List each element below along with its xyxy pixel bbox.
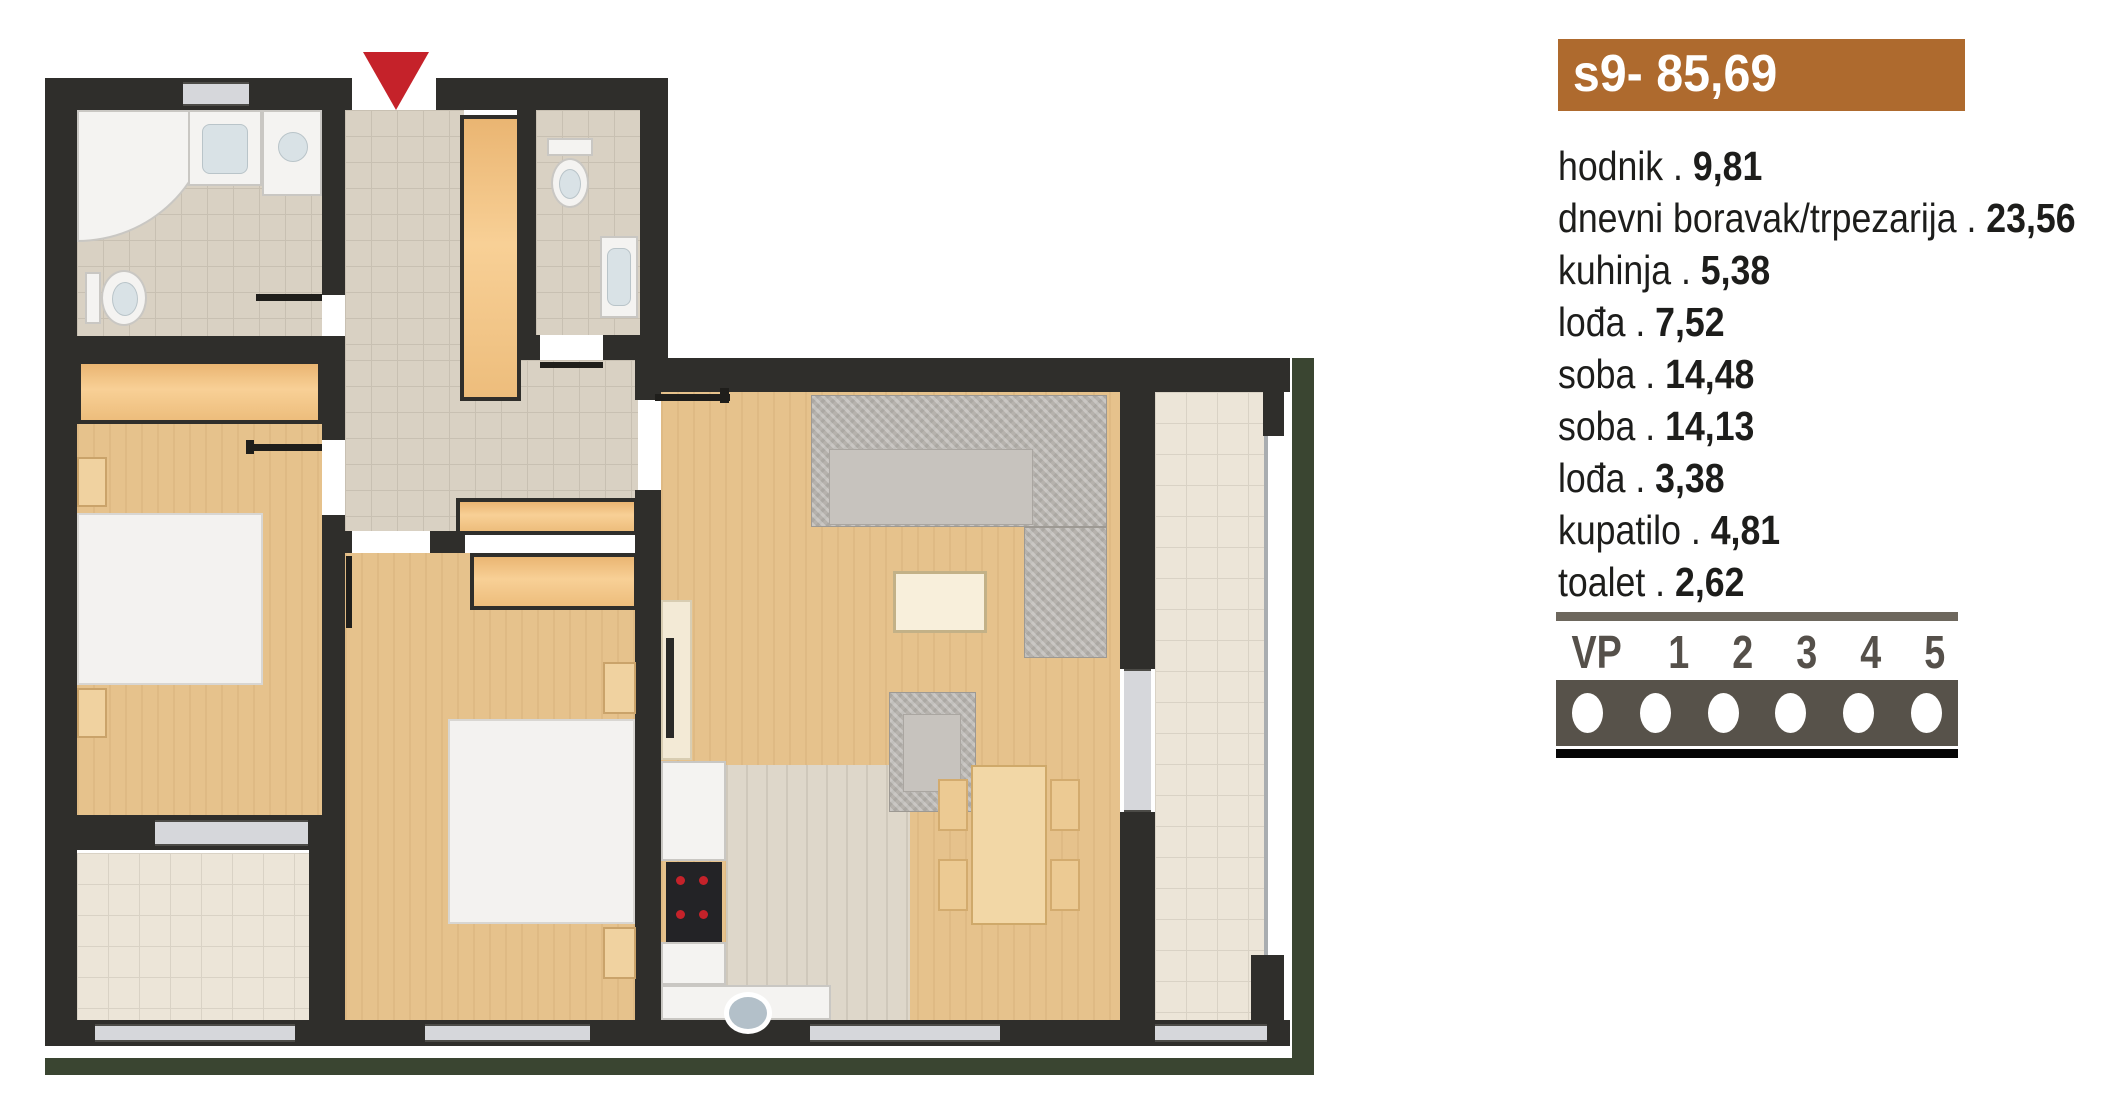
- corner-sofa-chaise: [1024, 527, 1107, 658]
- bed: [77, 513, 263, 685]
- separator: .: [1957, 195, 1987, 241]
- wall-segment: [322, 344, 345, 440]
- kitchen-counter: [661, 761, 726, 861]
- dining-chair: [938, 779, 968, 831]
- room-area: 14,13: [1665, 403, 1754, 449]
- floor-indicator: VP 1 2 3 4 5: [1556, 612, 1958, 758]
- wall-segment: [1120, 812, 1155, 1046]
- wall-segment: [640, 78, 668, 335]
- loggia-large-floor: [1155, 392, 1267, 1020]
- wall-segment: [635, 490, 661, 1046]
- floor-dot: [1911, 693, 1942, 733]
- wall-segment: [45, 336, 345, 360]
- room-name: lođa: [1558, 299, 1625, 345]
- wall-segment: [345, 531, 352, 553]
- room-area: 3,38: [1655, 455, 1724, 501]
- stove: [666, 862, 722, 942]
- stove-burner: [676, 876, 685, 885]
- list-item: hodnik . 9,81: [1558, 140, 2076, 192]
- wc-bowl-inner: [559, 169, 581, 199]
- floor-label: 3: [1796, 625, 1817, 679]
- dining-chair: [1050, 859, 1080, 911]
- list-item: kuhinja . 5,38: [1558, 244, 2076, 296]
- facade-strip-right: [1292, 358, 1314, 1075]
- floor-dot: [1843, 693, 1874, 733]
- wall-segment: [661, 358, 1290, 392]
- list-item: kupatilo . 4,81: [1558, 504, 2076, 556]
- living-loggia-window: [1124, 669, 1151, 812]
- loggia-pillar: [1251, 955, 1284, 1020]
- floor-label: 1: [1668, 625, 1689, 679]
- dining-table: [971, 765, 1047, 925]
- living-room-door: [655, 394, 730, 401]
- separator: .: [1635, 351, 1665, 397]
- wall-segment: [322, 110, 345, 295]
- floor-label: 5: [1925, 625, 1946, 679]
- wall-segment: [517, 110, 536, 335]
- hallway-wardrobe: [460, 115, 521, 401]
- toilet-bowl-inner: [112, 282, 138, 316]
- room-name: soba: [1558, 403, 1635, 449]
- wc-tank: [547, 138, 593, 156]
- floor-dot: [1775, 693, 1806, 733]
- loggia-large-sill: [1155, 1024, 1267, 1042]
- bedroom2-wardrobe: [470, 553, 638, 610]
- separator: .: [1681, 507, 1711, 553]
- room-area: 2,62: [1675, 559, 1744, 605]
- bedroom2-door: [346, 556, 352, 628]
- loggia-small-window: [95, 1024, 295, 1042]
- list-item: lođa . 7,52: [1558, 296, 2076, 348]
- stove-burner: [699, 876, 708, 885]
- bedroom1-window: [155, 820, 308, 846]
- washing-machine-door: [278, 132, 308, 162]
- floor-plan-page: s9- 85,69 hodnik . 9,81 dnevni boravak/t…: [0, 0, 2126, 1096]
- separator: .: [1645, 559, 1675, 605]
- indicator-bottom-bar: [1556, 749, 1958, 758]
- wall-segment: [45, 78, 77, 1046]
- list-item: dnevni boravak/trpezarija . 23,56: [1558, 192, 2076, 244]
- door-handle: [246, 440, 254, 454]
- bed: [448, 719, 635, 924]
- toilet-tank: [85, 272, 101, 324]
- loggia-glass-railing: [1264, 436, 1268, 955]
- loggia-pillar: [1263, 392, 1284, 436]
- room-area: 23,56: [1986, 195, 2075, 241]
- wall-segment: [322, 515, 345, 815]
- list-item: toalet . 2,62: [1558, 556, 2076, 608]
- list-item: soba . 14,13: [1558, 400, 2076, 452]
- room-name: kuhinja: [1558, 247, 1671, 293]
- floor-dot: [1572, 693, 1603, 733]
- separator: .: [1671, 247, 1701, 293]
- wall-segment: [436, 78, 668, 110]
- corner-sofa-seat: [829, 449, 1033, 525]
- floor-label: 2: [1732, 625, 1753, 679]
- room-area: 7,52: [1655, 299, 1724, 345]
- hallway-closet: [456, 498, 638, 535]
- wall-segment: [517, 335, 540, 360]
- entrance-arrow-icon: [363, 52, 429, 110]
- floor-dot: [1708, 693, 1739, 733]
- stove-burner: [676, 910, 685, 919]
- room-name: soba: [1558, 351, 1635, 397]
- room-area-list: hodnik . 9,81 dnevni boravak/trpezarija …: [1558, 140, 2126, 608]
- floor-labels: VP 1 2 3 4 5: [1556, 624, 1958, 680]
- hallway-floor-upper: [345, 110, 464, 360]
- nightstand: [77, 688, 107, 738]
- facade-strip-bottom: [45, 1058, 1314, 1075]
- room-name: toalet: [1558, 559, 1645, 605]
- unit-title: s9- 85,69: [1558, 39, 1777, 109]
- unit-title-badge: s9- 85,69: [1558, 39, 1965, 111]
- floor-dot: [1640, 693, 1671, 733]
- kitchen-counter: [661, 942, 726, 985]
- bedroom1-wardrobe: [77, 360, 322, 424]
- tv-screen: [666, 638, 674, 738]
- bathroom-window: [183, 82, 249, 106]
- loggia-small-floor: [77, 853, 309, 1020]
- nightstand: [603, 662, 636, 714]
- room-name: hodnik: [1558, 143, 1663, 189]
- wall-segment: [430, 531, 465, 553]
- floor-label: VP: [1572, 625, 1622, 679]
- bedroom1-door: [254, 444, 322, 451]
- dining-chair: [1050, 779, 1080, 831]
- room-name: dnevni boravak/trpezarija: [1558, 195, 1957, 241]
- door-handle: [720, 388, 729, 403]
- room-area: 14,48: [1665, 351, 1754, 397]
- wall-segment: [1120, 392, 1155, 669]
- room-name: kupatilo: [1558, 507, 1681, 553]
- floor-dots-bar: [1556, 680, 1958, 746]
- nightstand: [77, 457, 107, 507]
- bathroom-sink-basin: [202, 124, 248, 174]
- room-name: lođa: [1558, 455, 1625, 501]
- list-item: soba . 14,48: [1558, 348, 2076, 400]
- separator: .: [1635, 403, 1665, 449]
- separator: .: [1625, 299, 1655, 345]
- kitchen-floor: [726, 765, 910, 1020]
- bathroom-door: [256, 294, 322, 301]
- room-area: 5,38: [1701, 247, 1770, 293]
- separator: .: [1663, 143, 1693, 189]
- wall-segment: [603, 335, 668, 360]
- nightstand: [603, 927, 636, 979]
- coffee-table: [893, 571, 987, 633]
- separator: .: [1625, 455, 1655, 501]
- kitchen-sink: [724, 992, 772, 1034]
- bedroom2-window: [425, 1024, 590, 1042]
- dining-window: [810, 1024, 1000, 1042]
- indicator-top-bar: [1556, 612, 1958, 621]
- dining-chair: [938, 859, 968, 911]
- room-area: 4,81: [1711, 507, 1780, 553]
- room-area: 9,81: [1693, 143, 1762, 189]
- toilet-door: [540, 362, 603, 368]
- list-item: lođa . 3,38: [1558, 452, 2076, 504]
- wc-sink-basin: [607, 248, 631, 306]
- floor-label: 4: [1861, 625, 1882, 679]
- stove-burner: [699, 910, 708, 919]
